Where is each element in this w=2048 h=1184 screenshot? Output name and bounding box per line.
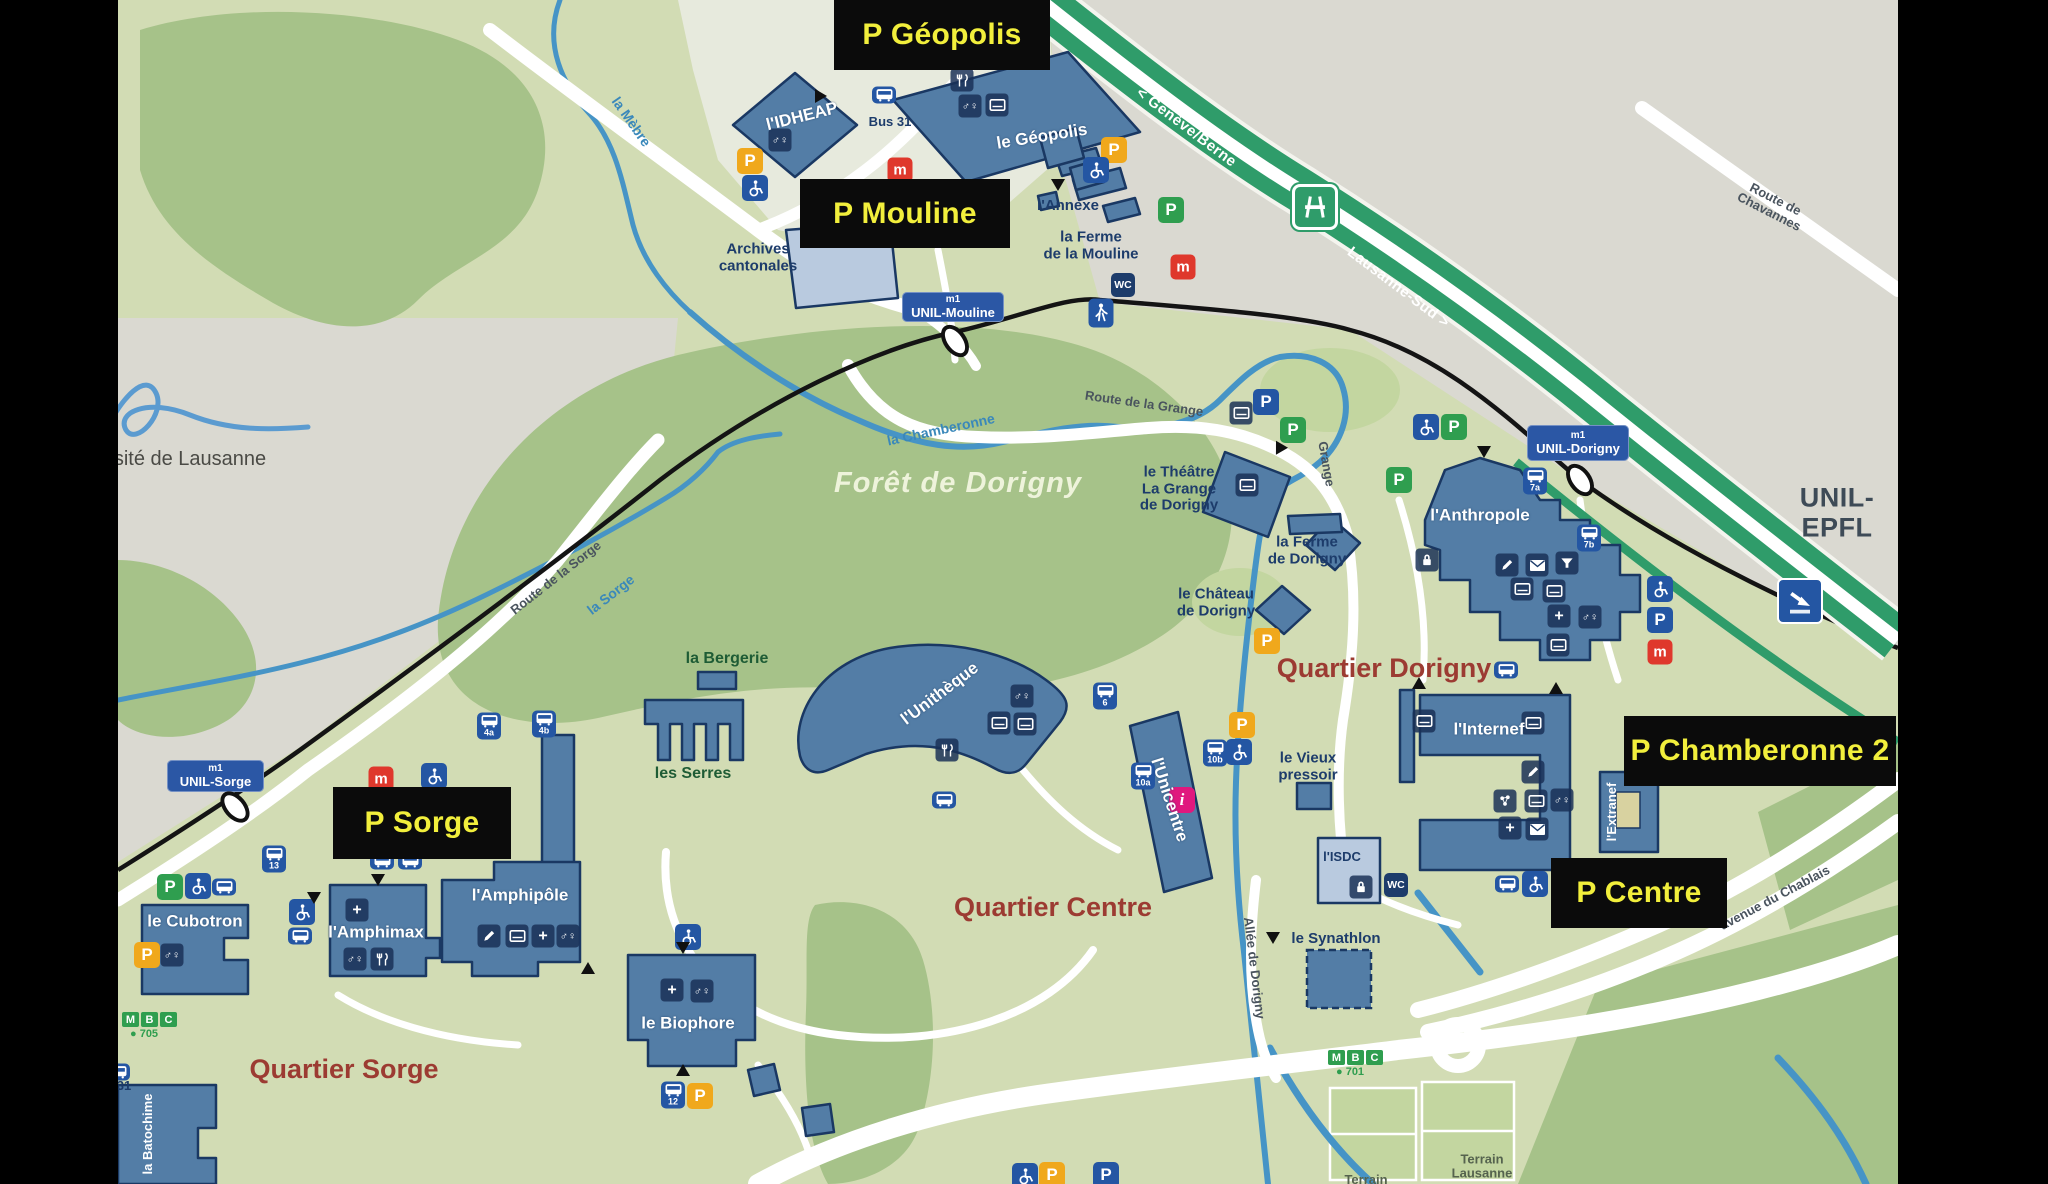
parking-label-centre: P Centre bbox=[1551, 858, 1727, 928]
metro-line-label: m1 bbox=[1571, 431, 1585, 441]
parking-label-geopolis: P Géopolis bbox=[834, 0, 1050, 70]
station-unil-dorigny: m1UNIL-Dorigny bbox=[1527, 425, 1629, 461]
parking-label-text: P Centre bbox=[1576, 876, 1701, 910]
station-name: UNIL-Sorge bbox=[180, 775, 252, 788]
parking-label-mouline: P Mouline bbox=[800, 179, 1010, 248]
metro-line-label: m1 bbox=[946, 295, 960, 305]
station-unil-mouline: m1UNIL-Mouline bbox=[902, 292, 1004, 322]
parking-label-text: P Mouline bbox=[833, 197, 977, 231]
parking-label-text: P Géopolis bbox=[862, 18, 1021, 52]
parking-label-sorge: P Sorge bbox=[333, 787, 511, 859]
station-name: UNIL-Dorigny bbox=[1536, 442, 1620, 455]
station-name: UNIL-Mouline bbox=[911, 306, 995, 319]
station-marker-unil-mouline bbox=[935, 320, 974, 363]
campus-map-screenshot: MBC● 705MBC● 701PPPPPPPPPPPPPPPmmmmWCWC♂… bbox=[0, 0, 2048, 1184]
parking-label-text: P Chamberonne 2 bbox=[1630, 734, 1889, 768]
parking-label-chamberonne-2: P Chamberonne 2 bbox=[1624, 716, 1896, 786]
metro-line-label: m1 bbox=[208, 764, 222, 774]
map-canvas: MBC● 705MBC● 701PPPPPPPPPPPPPPPmmmmWCWC♂… bbox=[118, 0, 1898, 1184]
station-unil-sorge: m1UNIL-Sorge bbox=[167, 760, 264, 792]
station-marker-unil-sorge bbox=[215, 786, 256, 828]
parking-label-text: P Sorge bbox=[365, 806, 480, 840]
station-marker-unil-dorigny bbox=[1560, 459, 1599, 502]
